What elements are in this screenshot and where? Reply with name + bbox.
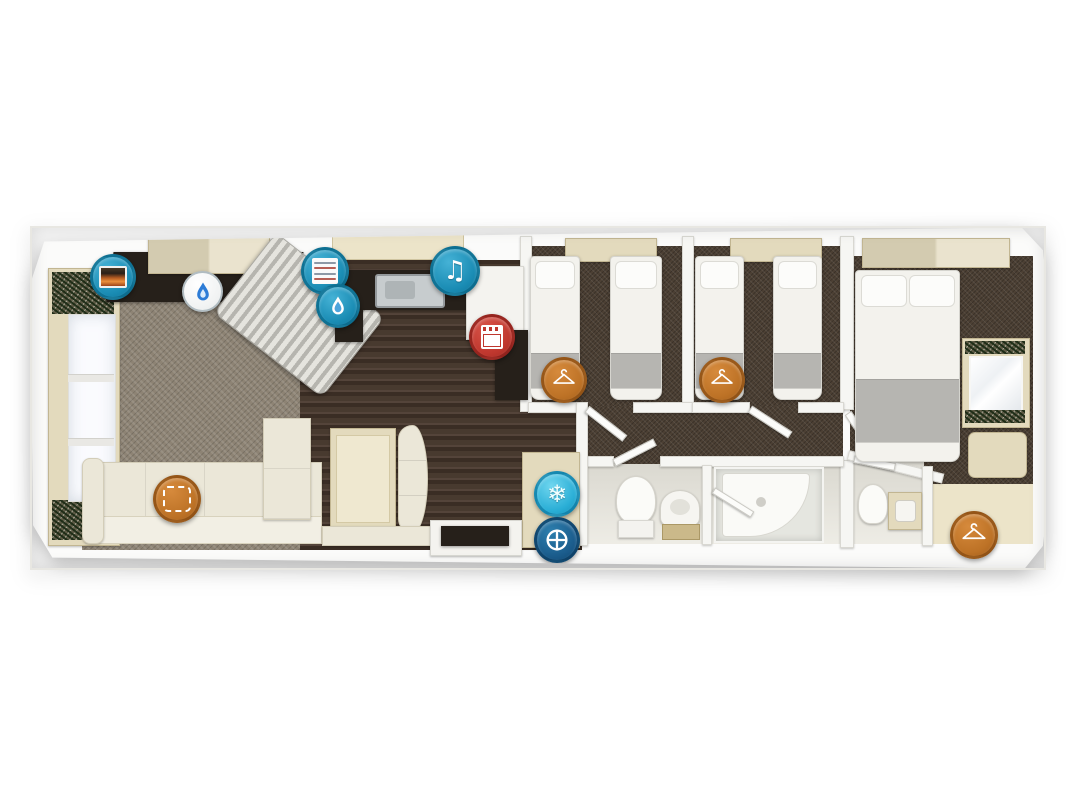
wall-bed1-bed2: [682, 236, 694, 412]
floor-plan-image: ♫: [0, 0, 1078, 808]
sofa-bed-glyph: [163, 486, 191, 512]
master-footband: [856, 379, 959, 443]
cooker-glyph: [481, 325, 503, 348]
wall-corridor-bath-b: [660, 456, 844, 467]
wardrobe-icon-bed2: [699, 357, 745, 403]
central-heating-glyph: [312, 258, 337, 283]
gas-flame-icon: [182, 271, 223, 312]
dining-bench-bottom: [322, 526, 434, 546]
dining-table: [330, 428, 396, 530]
bed2-left-pillow: [700, 261, 740, 289]
sofa-bed-icon: [153, 475, 201, 523]
entrance-step-unit: [430, 520, 522, 556]
hanger-glyph: [709, 367, 735, 393]
dressing-valance-bottom: [965, 410, 1025, 423]
entrance-mat: [441, 526, 509, 546]
shower-cubicle: [714, 467, 824, 543]
hanger-glyph: [960, 521, 988, 549]
dressing-mirror: [969, 356, 1023, 412]
caravan-outline: ♫: [30, 226, 1046, 570]
basin-bowl: [670, 499, 690, 515]
wash-basin: [660, 490, 700, 526]
master-overhead-cupboard: [862, 238, 1010, 268]
ensuite-basin: [895, 500, 916, 522]
master-double-bed: [855, 270, 960, 462]
sofa-back: [85, 516, 322, 544]
washing-machine-icon: [534, 517, 580, 563]
hanger-glyph: [551, 367, 577, 393]
toilet-cistern: [618, 520, 654, 538]
wall-corridor-bath-a: [585, 456, 614, 467]
sink-bowl: [385, 281, 415, 299]
bed1-right-pillow: [615, 261, 657, 289]
ensuite-toilet: [858, 484, 888, 524]
window-mullion-1: [68, 374, 114, 382]
gas-flame-glyph: [191, 280, 215, 304]
bed1-right-footband: [611, 353, 661, 389]
dressing-valance-top: [965, 341, 1025, 354]
music-glyph: ♫: [443, 258, 466, 284]
music-icon: ♫: [430, 246, 480, 296]
toilet: [616, 476, 656, 524]
master-pillow-right: [909, 275, 955, 307]
master-pillow-left: [861, 275, 907, 307]
hot-water-icon: [316, 284, 360, 328]
electric-fire-glyph: [99, 266, 128, 288]
dressing-stool: [968, 432, 1027, 478]
wall-bedfront-c: [692, 402, 750, 413]
hot-water-glyph: [326, 294, 350, 318]
sofa-chaise: [263, 418, 311, 520]
wall-bed2-master-upper: [840, 236, 854, 410]
wall-bathroom-partition: [702, 465, 712, 545]
dining-table-top: [336, 435, 390, 523]
dining-bench-curved: [398, 425, 428, 533]
fridge-freezer-icon: ❄: [534, 471, 580, 517]
wardrobe-icon-master: [950, 511, 998, 559]
sofa-arm-left: [82, 458, 104, 544]
wall-bedfront-d: [798, 402, 844, 413]
basin-shelf: [662, 524, 700, 540]
bed2-single-right: [773, 256, 822, 400]
wall-bath-master-lower: [840, 460, 854, 548]
bed2-right-footband: [774, 353, 821, 389]
bed1-single-right: [610, 256, 662, 400]
wall-ensuite-right: [922, 466, 933, 546]
snowflake-glyph: ❄: [547, 482, 567, 506]
bed1-left-pillow: [535, 261, 575, 289]
shower-drain: [756, 497, 766, 507]
dressing-table: [962, 338, 1030, 428]
bed2-right-pillow: [778, 261, 818, 289]
wall-bedfront-b: [633, 402, 694, 413]
caravan-shell: ♫: [30, 226, 1046, 570]
washer-drum-glyph: [543, 526, 571, 554]
cooker-icon: [469, 314, 515, 360]
window-mullion-2: [68, 438, 114, 446]
wardrobe-icon-bed1: [541, 357, 587, 403]
ensuite-basin-unit: [888, 492, 922, 530]
electric-fire-icon: [90, 254, 136, 300]
